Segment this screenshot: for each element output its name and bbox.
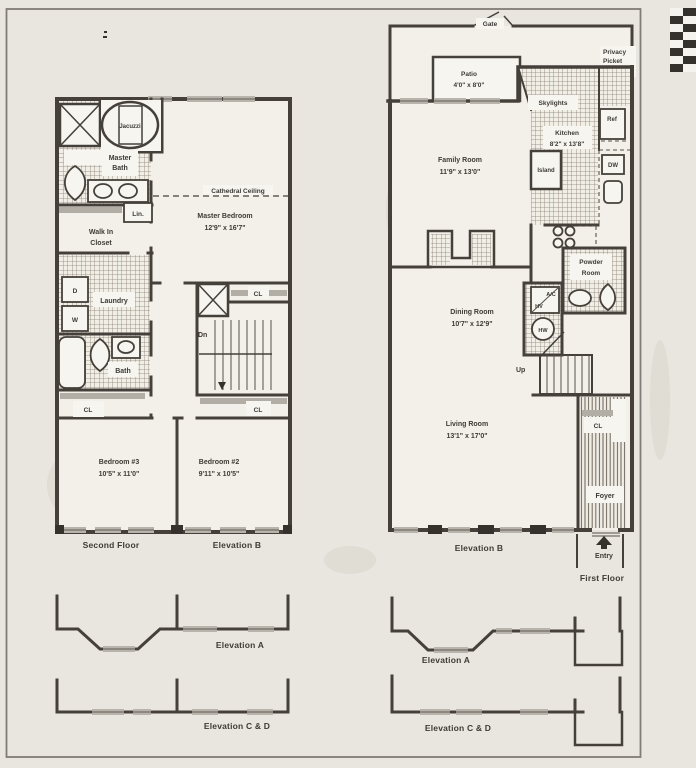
ac-label: A/C — [546, 292, 556, 298]
powder-sink-icon — [569, 290, 591, 306]
stairs-closet-label: CL — [254, 291, 263, 298]
powder-label-2: Room — [582, 270, 601, 277]
elevation-left-cd-label: Elevation C & D — [204, 721, 270, 731]
family-room-label: Family Room — [438, 157, 482, 164]
patio: Patio 4'0" x 8'0" — [433, 57, 520, 101]
gate-label: Gate — [483, 21, 498, 28]
hv-label: HV — [535, 304, 543, 310]
second-floor-title: Second Floor — [83, 540, 140, 550]
shower-icon — [60, 104, 100, 146]
powder-room: Powder Room — [563, 248, 625, 313]
living-room-dim: 13'1" x 17'0" — [446, 433, 487, 440]
floor-plan-drawing: Jacuzzi Master Bath Cathedral Ceiling Li… — [0, 0, 696, 768]
linen-closet: Lin. — [124, 203, 152, 222]
family-room-dim: 11'9" x 13'0" — [440, 169, 481, 176]
elevation-right-cd: Elevation C & D — [392, 676, 622, 745]
patio-dim: 4'0" x 8'0" — [454, 82, 485, 89]
dining-room-label: Dining Room — [450, 309, 494, 316]
elevation-right-a: Elevation A — [392, 598, 622, 665]
wic-label-2: Closet — [90, 240, 112, 247]
water-heater-icon: HW — [532, 318, 554, 340]
vanity-sink-icon — [94, 184, 112, 198]
bathtub-icon — [59, 337, 85, 388]
kitchen-dim: 8'2" x 13'8" — [550, 141, 585, 148]
elevation-right-cd-label: Elevation C & D — [425, 723, 491, 733]
elevation-right-a-label: Elevation A — [422, 655, 470, 665]
first-floor-title: First Floor — [580, 573, 625, 583]
patio-label: Patio — [461, 71, 477, 78]
foyer-label: Foyer — [595, 493, 614, 500]
second-floor-elevation-label: Elevation B — [213, 540, 262, 550]
stairs-down-label: Dn — [198, 332, 207, 339]
skylights-label: Skylights — [539, 100, 568, 107]
floor-plan-scan-page: Jacuzzi Master Bath Cathedral Ceiling Li… — [0, 0, 696, 768]
dw-label: DW — [608, 163, 618, 169]
master-bedroom-dim: 12'9" x 16'7" — [204, 225, 245, 232]
living-room-label: Living Room — [446, 421, 488, 428]
dining-room-dim: 10'7" x 12'9" — [451, 321, 492, 328]
bedroom2-label: Bedroom #2 — [199, 459, 240, 466]
island-label: Island — [537, 168, 555, 174]
master-bath-label-2: Bath — [112, 165, 128, 172]
kitchen-label: Kitchen — [555, 130, 579, 137]
second-floor-top-windows — [148, 96, 255, 102]
bedroom3-dim: 10'5" x 11'0" — [99, 471, 140, 478]
jacuzzi-label: Jacuzzi — [119, 124, 141, 130]
bath-sink-icon — [118, 341, 134, 353]
first-floor-elevation-label: Elevation B — [455, 543, 504, 553]
entry-label: Entry — [595, 553, 613, 560]
ac-hv-unit: A/C HV — [531, 287, 559, 313]
fence-label-2: Picket — [603, 58, 623, 65]
mechanical-closet: A/C HV HW — [524, 283, 562, 355]
registration-checkerboard-marker — [670, 8, 696, 72]
bedroom2-closet-label: CL — [254, 407, 263, 414]
bath-label: Bath — [115, 368, 131, 375]
vanity-sink-icon — [119, 184, 137, 198]
bedroom2-dim: 9'11" x 10'5" — [199, 471, 240, 478]
powder-label-1: Powder — [579, 259, 603, 266]
entry-arrow-icon — [596, 536, 612, 549]
ref-label: Ref — [607, 117, 618, 123]
kitchen-sink-icon — [604, 181, 622, 203]
wic-label-1: Walk In — [89, 229, 113, 236]
cathedral-ceiling-label: Cathedral Ceiling — [211, 188, 264, 195]
linen-label: Lin. — [132, 211, 144, 218]
up-label: Up — [516, 367, 525, 374]
hall-closet-label: CL — [84, 407, 93, 414]
washer-label: W — [72, 317, 79, 324]
refrigerator — [600, 109, 625, 139]
entry-porch-walls — [577, 535, 623, 567]
elevation-left-cd: Elevation C & D — [57, 680, 288, 731]
elevation-left-a-label: Elevation A — [216, 640, 264, 650]
master-bath-label-1: Master — [109, 155, 132, 162]
second-floor-plan: Jacuzzi Master Bath Cathedral Ceiling Li… — [55, 96, 292, 550]
foyer-closet: CL — [582, 410, 613, 433]
entry: Entry First Floor — [577, 535, 625, 583]
dryer-label: D — [73, 288, 78, 295]
first-floor-plan: Gate Privacy Picket Fence Patio 4'0" x 8… — [388, 12, 636, 583]
foyer-notch — [611, 399, 626, 442]
master-bath: Master Bath — [64, 150, 148, 202]
bedroom3-label: Bedroom #3 — [99, 459, 140, 466]
first-floor-top-windows — [400, 98, 500, 104]
foyer-closet-label: CL — [594, 423, 603, 430]
skylights: Skylights — [528, 95, 578, 110]
elevation-left-a: Elevation A — [57, 596, 288, 652]
jacuzzi-tub-icon: Jacuzzi — [101, 100, 161, 151]
fence-label-1: Privacy — [603, 49, 627, 56]
hw-label: HW — [538, 328, 548, 334]
laundry-label: Laundry — [100, 298, 128, 305]
chase-x-icon — [198, 284, 228, 316]
entry-steps — [592, 533, 620, 536]
master-bedroom-label: Master Bedroom — [197, 213, 252, 220]
